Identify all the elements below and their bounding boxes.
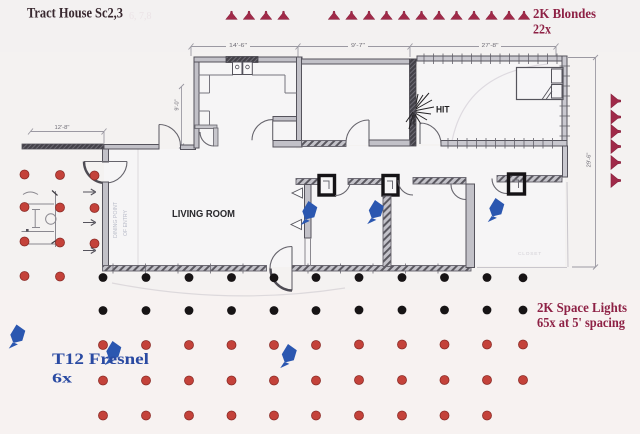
svg-text:2K Space Lights: 2K Space Lights <box>537 301 628 316</box>
svg-text:9'-7": 9'-7" <box>351 43 365 49</box>
svg-text:Tract House Sc2,3: Tract House Sc2,3 <box>27 6 123 22</box>
svg-text:CLOSET: CLOSET <box>518 251 542 257</box>
svg-text:OF ENTRY: OF ENTRY <box>123 209 129 236</box>
svg-text:27'-8": 27'-8" <box>482 43 499 49</box>
svg-text:DINING POINT: DINING POINT <box>113 201 119 238</box>
svg-text:14'-6": 14'-6" <box>229 43 247 49</box>
svg-text:6x: 6x <box>52 372 72 387</box>
svg-text:2K Blondes: 2K Blondes <box>533 7 596 22</box>
svg-text:LIVING ROOM: LIVING ROOM <box>172 208 235 220</box>
svg-text:22x: 22x <box>533 22 551 37</box>
svg-text:65x at 5' spacing: 65x at 5' spacing <box>537 315 625 330</box>
svg-text:HIT: HIT <box>436 105 450 115</box>
svg-text:6, 7,8: 6, 7,8 <box>129 11 152 22</box>
svg-text:12'-8": 12'-8" <box>55 125 70 131</box>
svg-text:9'-0": 9'-0" <box>175 99 181 110</box>
svg-text:29'-6": 29'-6" <box>587 153 593 168</box>
svg-text:T12 Fresnel: T12 Fresnel <box>52 351 150 368</box>
